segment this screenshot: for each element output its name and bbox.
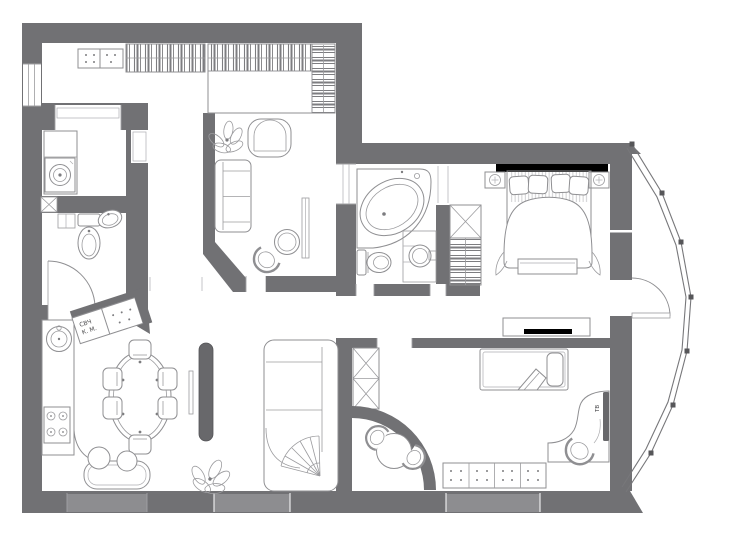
linen-closet xyxy=(450,205,481,285)
armchair xyxy=(248,119,291,157)
side-table xyxy=(275,230,300,255)
pouf-1 xyxy=(88,447,110,469)
wall-top-left-wing xyxy=(22,23,362,43)
kids-door-opening xyxy=(377,338,412,348)
floor-plan-svg: СВЧ К. М. xyxy=(0,0,735,552)
tv-partition xyxy=(189,343,213,441)
wc-shelf xyxy=(58,214,75,228)
dining-chair-top xyxy=(129,340,151,359)
nightstand-left xyxy=(485,172,505,188)
wall-top-right-wing xyxy=(336,143,632,164)
kids-wardrobe xyxy=(353,348,379,409)
chest-of-drawers xyxy=(443,463,546,488)
wall-sill-line xyxy=(610,230,632,233)
corner-sofa xyxy=(264,340,338,491)
dining-chair-left-2 xyxy=(103,397,122,419)
dining-chair-bottom xyxy=(129,435,151,454)
balcony-glazing xyxy=(622,142,694,493)
wc-room xyxy=(48,207,124,306)
bathroom-door-opening xyxy=(356,284,374,296)
double-bed xyxy=(496,171,600,275)
bathroom-side-opening xyxy=(336,164,356,204)
single-bed xyxy=(480,349,568,390)
dining-chair-left-1 xyxy=(103,368,122,390)
wall-living-left xyxy=(203,113,215,242)
wc-toilet xyxy=(78,214,100,259)
bathroom xyxy=(349,167,481,285)
wc-door-swing xyxy=(48,261,95,306)
washbasin-counter xyxy=(403,231,436,282)
glazing-joints xyxy=(630,142,694,456)
kitchen-living-room: СВЧ К. М. xyxy=(42,288,338,501)
shoe-cabinet xyxy=(78,49,123,68)
wall-living-diagonal xyxy=(203,242,246,292)
bottom-window-2 xyxy=(214,493,290,512)
living-door-opening xyxy=(246,276,266,292)
balcony-door-leaf xyxy=(632,313,670,318)
kids-room: ТВ xyxy=(352,348,609,490)
floor-plan-page: СВЧ К. М. xyxy=(0,0,735,552)
wall-bottom-wedge xyxy=(630,491,643,513)
wardrobe-hangers-1 xyxy=(126,44,205,72)
bedroom xyxy=(485,164,609,336)
wall-bathroom-left xyxy=(336,204,356,292)
hall-niche xyxy=(131,130,148,163)
tub-chair-living xyxy=(249,246,281,278)
pouf-2 xyxy=(117,451,137,471)
tv-label: ТВ xyxy=(595,405,601,413)
wall-right-bedroom xyxy=(610,164,632,280)
utility-door-opening xyxy=(55,105,121,130)
closet-opening xyxy=(430,284,446,296)
balcony-door xyxy=(632,278,670,318)
washing-machine xyxy=(45,158,75,192)
wall-corner-post xyxy=(336,23,362,164)
nightstand-right xyxy=(589,172,609,188)
bottom-window-1 xyxy=(67,493,147,512)
loveseat-sofa xyxy=(215,160,251,232)
vestibule-opening xyxy=(438,166,448,203)
cooktop xyxy=(44,407,70,443)
foot-bench xyxy=(518,259,577,274)
bathroom-toilet xyxy=(357,250,391,275)
hall-threshold xyxy=(150,277,202,291)
kitchen-sink xyxy=(47,326,72,352)
angled-cabinets: СВЧ К. М. xyxy=(70,288,152,345)
vent-shaft xyxy=(41,197,57,212)
balcony-door-swing-arc xyxy=(632,278,670,316)
entry-hall xyxy=(78,44,335,113)
wall-living-bottom xyxy=(266,276,336,292)
bottom-window-3 xyxy=(446,493,540,512)
corner-bathtub xyxy=(349,167,434,248)
wall-bathroom-right xyxy=(436,205,450,284)
wardrobe-hangers-2 xyxy=(208,44,335,113)
utility-room xyxy=(44,131,77,194)
dining-chair-right-1 xyxy=(158,368,177,390)
wall-shelf xyxy=(302,198,309,258)
dining-chair-right-2 xyxy=(158,397,177,419)
blanket xyxy=(504,197,592,268)
kids-pillow xyxy=(547,353,563,386)
left-wall-window xyxy=(23,64,41,106)
bedroom-tv-console xyxy=(503,318,590,336)
